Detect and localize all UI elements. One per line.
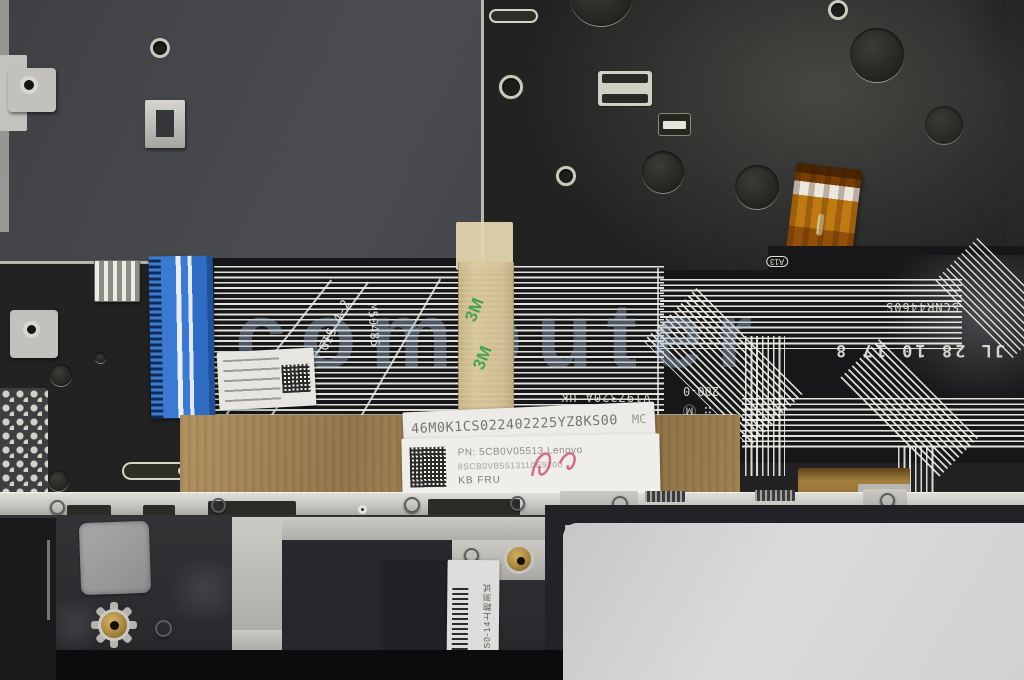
adhesive-tape: 3M 3M [458,262,514,422]
plate-hole [642,151,684,193]
ribbed-tab [645,491,685,502]
keyboard-fru-photo: SCNR4460S JL 28 10 17 8 V19Z320A UK 200-… [0,0,1024,680]
trackpad-back [563,523,1024,680]
plate-hole [925,106,963,144]
screw [50,500,65,515]
brass-grommet [504,544,534,574]
edge-cutout [428,499,520,516]
screw [211,498,226,513]
qr-code [410,447,447,488]
tape-brand-logo: 3M [469,343,496,372]
screw [404,497,420,513]
trackpad-frame [545,505,1024,525]
screw-boss [10,310,58,358]
mini-label-text-lines [223,357,281,402]
ffc-connector [149,255,216,418]
plate-h-cutout [598,71,652,106]
serial-suffix: MC [632,412,647,427]
fingerprint-pad [79,521,151,595]
screw-hole [556,166,576,186]
screw-boss [8,68,56,112]
red-handwritten-mark [521,441,592,490]
bottom-shadow [0,650,563,680]
shop-watermark: computer [235,284,955,389]
screw [510,496,525,511]
screw [155,620,172,637]
star-screw-boss [86,596,142,654]
serial-number: 46M0K1CS022402225YZ8KS00 [411,412,619,437]
plate-latch-cutout [658,113,691,136]
metal-clip [145,100,185,148]
plate-hole [95,352,106,363]
palmrest-top-panel [0,0,483,263]
ribbed-tab [755,490,795,501]
plate-slot [489,9,538,23]
plate-hole [735,165,779,209]
plate-hole [850,28,904,82]
screw-hole [499,75,523,99]
qr-code [281,364,310,393]
tape-brand-logo: 3M [461,295,488,324]
spring-clip [94,260,140,302]
stamp-a13: A13 [766,256,788,267]
screw-hole [828,0,848,20]
plate-hole [48,470,69,491]
plate-right-edge [1006,0,1024,260]
ffc-teeth [149,256,164,418]
pin-hole [358,505,367,514]
screw-hole [150,38,170,58]
flex-mini-label [217,348,317,411]
plate-hole [50,364,72,386]
left-corner-shadow [0,518,56,680]
